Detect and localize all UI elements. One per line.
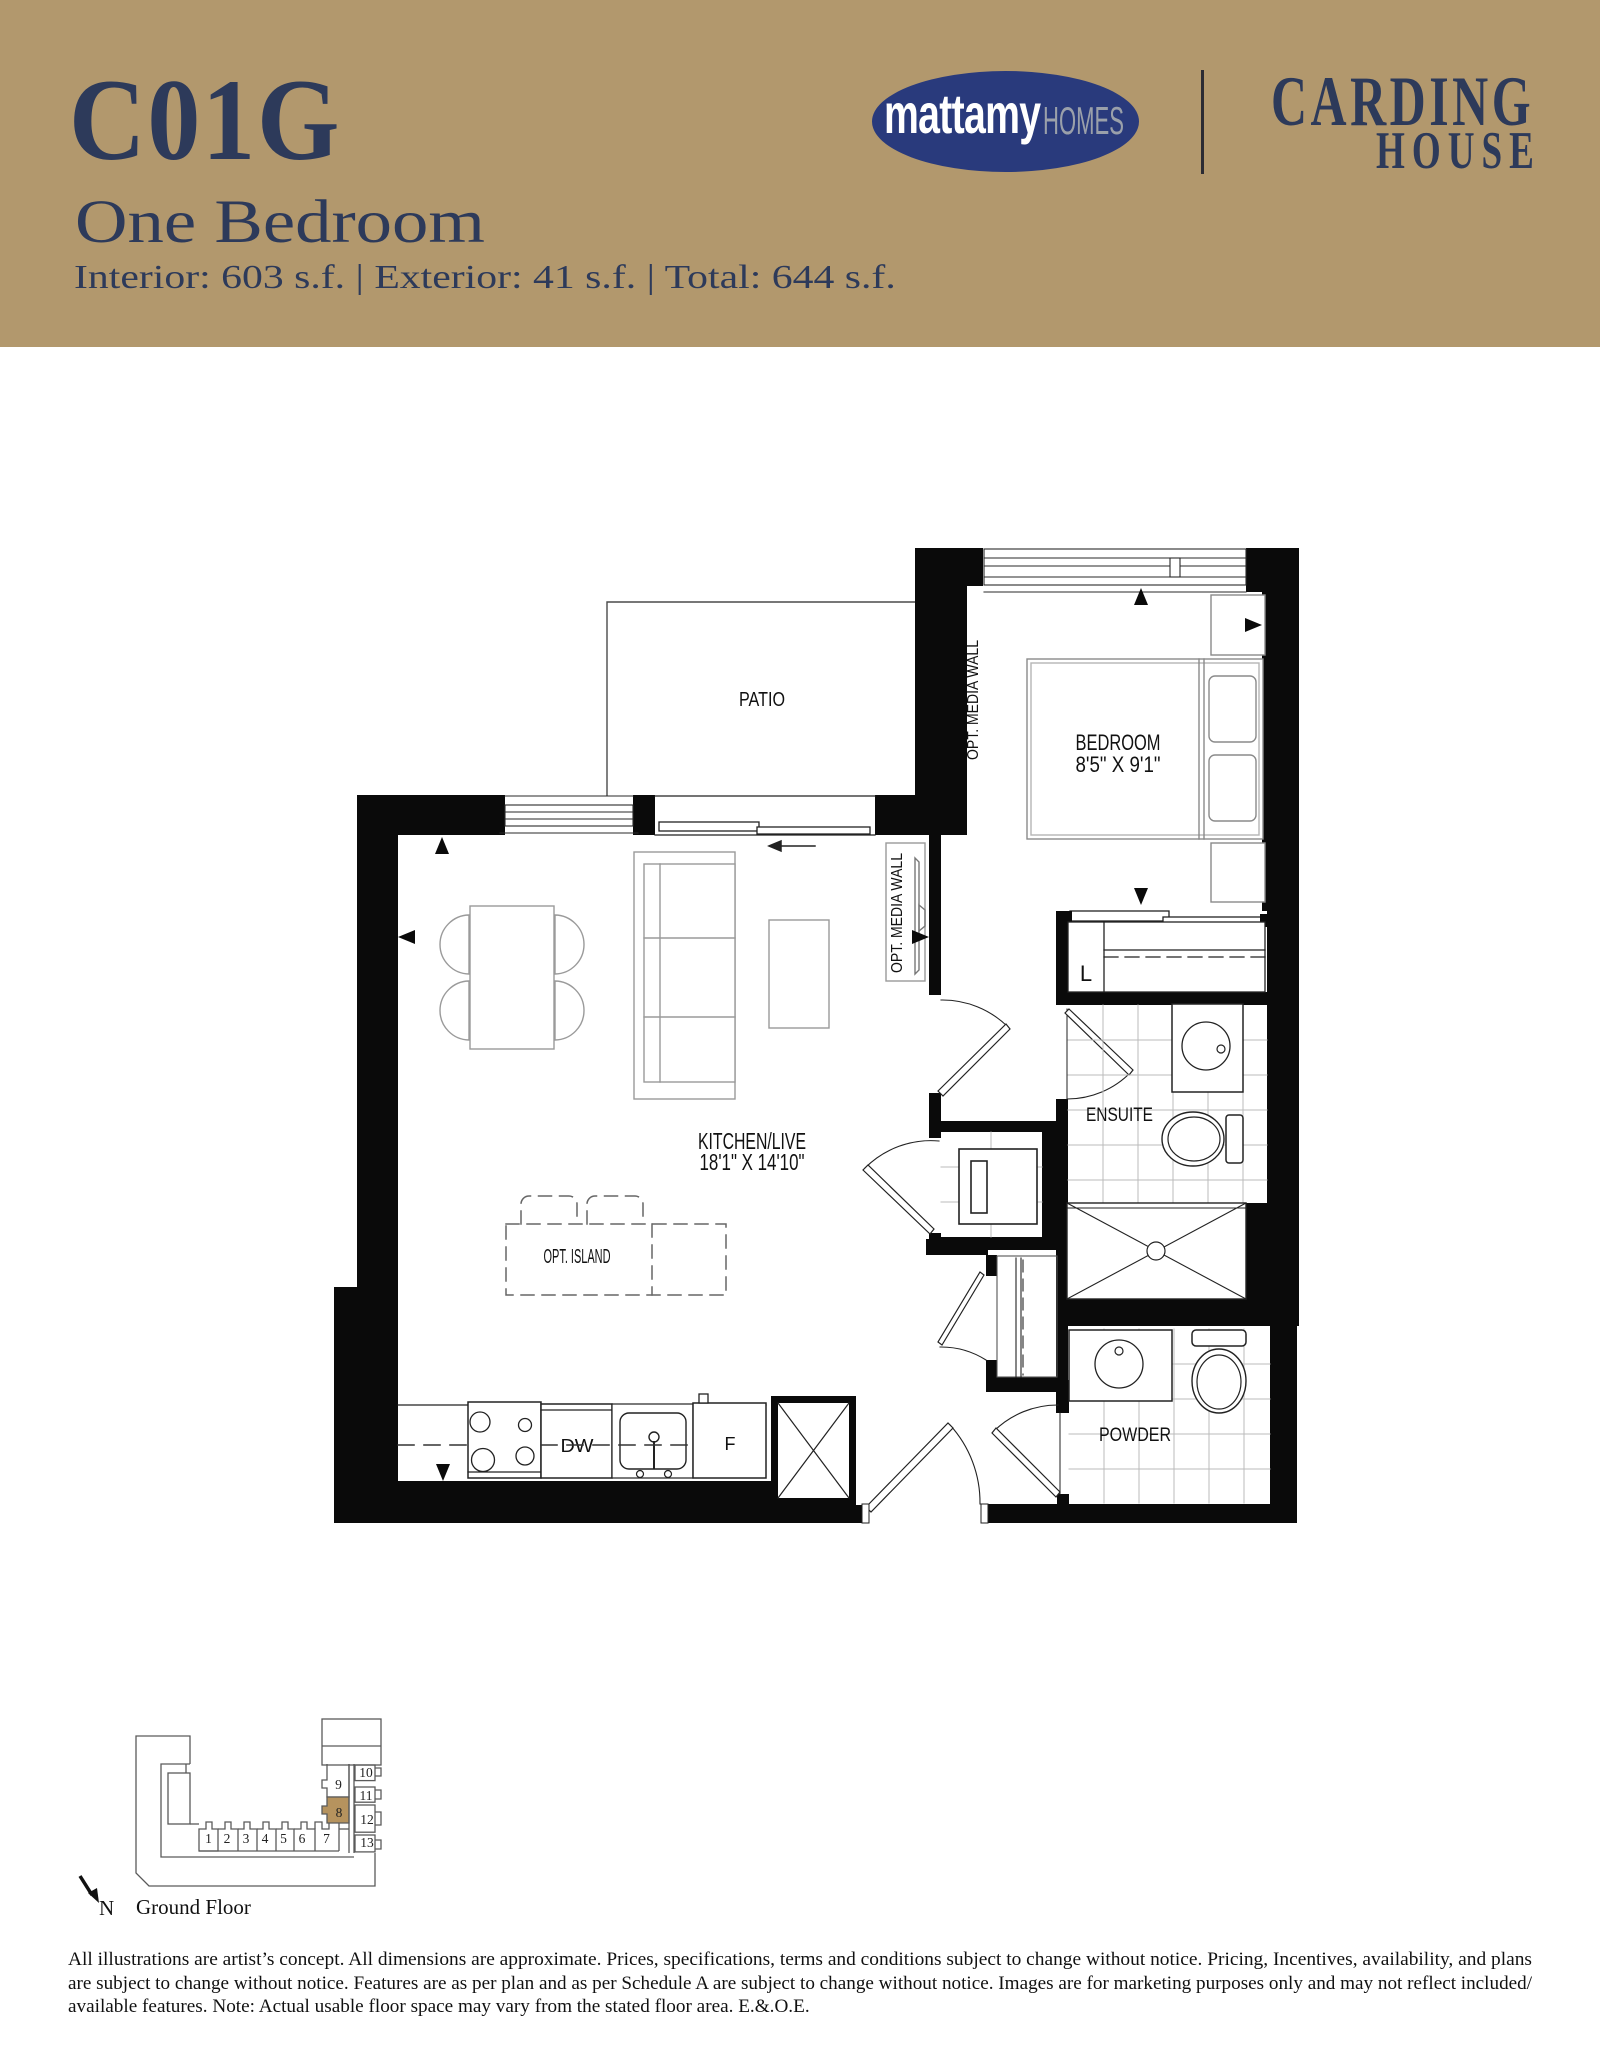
svg-text:10: 10: [359, 1765, 373, 1780]
svg-text:5: 5: [280, 1831, 287, 1846]
svg-text:18'1" X 14'10": 18'1" X 14'10": [700, 1149, 805, 1175]
svg-text:8'5" X 9'1": 8'5" X 9'1": [1076, 752, 1161, 777]
svg-text:F: F: [725, 1434, 736, 1454]
svg-text:7: 7: [323, 1831, 330, 1846]
svg-text:L: L: [1080, 961, 1092, 986]
svg-text:12: 12: [360, 1812, 374, 1827]
svg-text:OPT. MEDIA WALL: OPT. MEDIA WALL: [965, 640, 982, 760]
svg-text:2: 2: [224, 1831, 231, 1846]
svg-text:9: 9: [335, 1777, 342, 1792]
svg-text:13: 13: [360, 1835, 374, 1850]
svg-text:PATIO: PATIO: [739, 689, 785, 711]
svg-text:1: 1: [205, 1831, 212, 1846]
svg-text:POWDER: POWDER: [1099, 1425, 1171, 1446]
svg-text:DW: DW: [561, 1436, 594, 1456]
svg-text:OPT. ISLAND: OPT. ISLAND: [544, 1246, 611, 1268]
svg-text:N: N: [99, 1896, 114, 1920]
svg-text:8: 8: [336, 1805, 343, 1820]
svg-text:4: 4: [262, 1831, 269, 1846]
svg-text:OPT. MEDIA WALL: OPT. MEDIA WALL: [889, 853, 906, 973]
svg-text:6: 6: [299, 1831, 306, 1846]
svg-text:ENSUITE: ENSUITE: [1086, 1105, 1153, 1126]
svg-text:Ground Floor: Ground Floor: [136, 1895, 251, 1919]
svg-text:3: 3: [243, 1831, 250, 1846]
svg-text:11: 11: [360, 1788, 373, 1803]
